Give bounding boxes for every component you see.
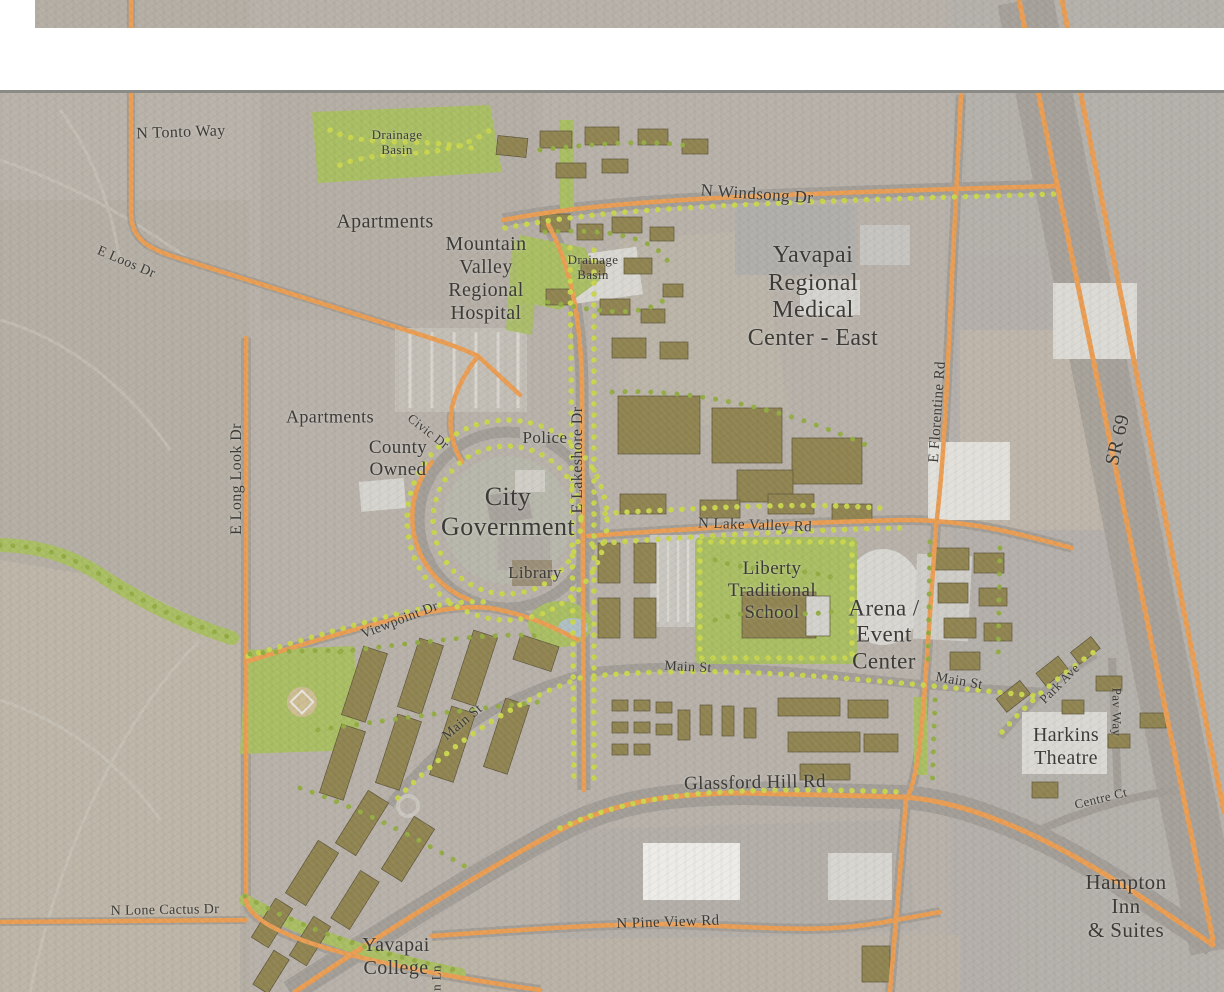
- map-top-border-line: [0, 90, 1224, 93]
- top-white-band: [0, 28, 1224, 90]
- aerial-map-canvas: [0, 0, 1224, 992]
- planning-map: N Tonto WayDrainage BasinApartmentsMount…: [0, 0, 1224, 992]
- top-left-white-corner: [0, 0, 35, 28]
